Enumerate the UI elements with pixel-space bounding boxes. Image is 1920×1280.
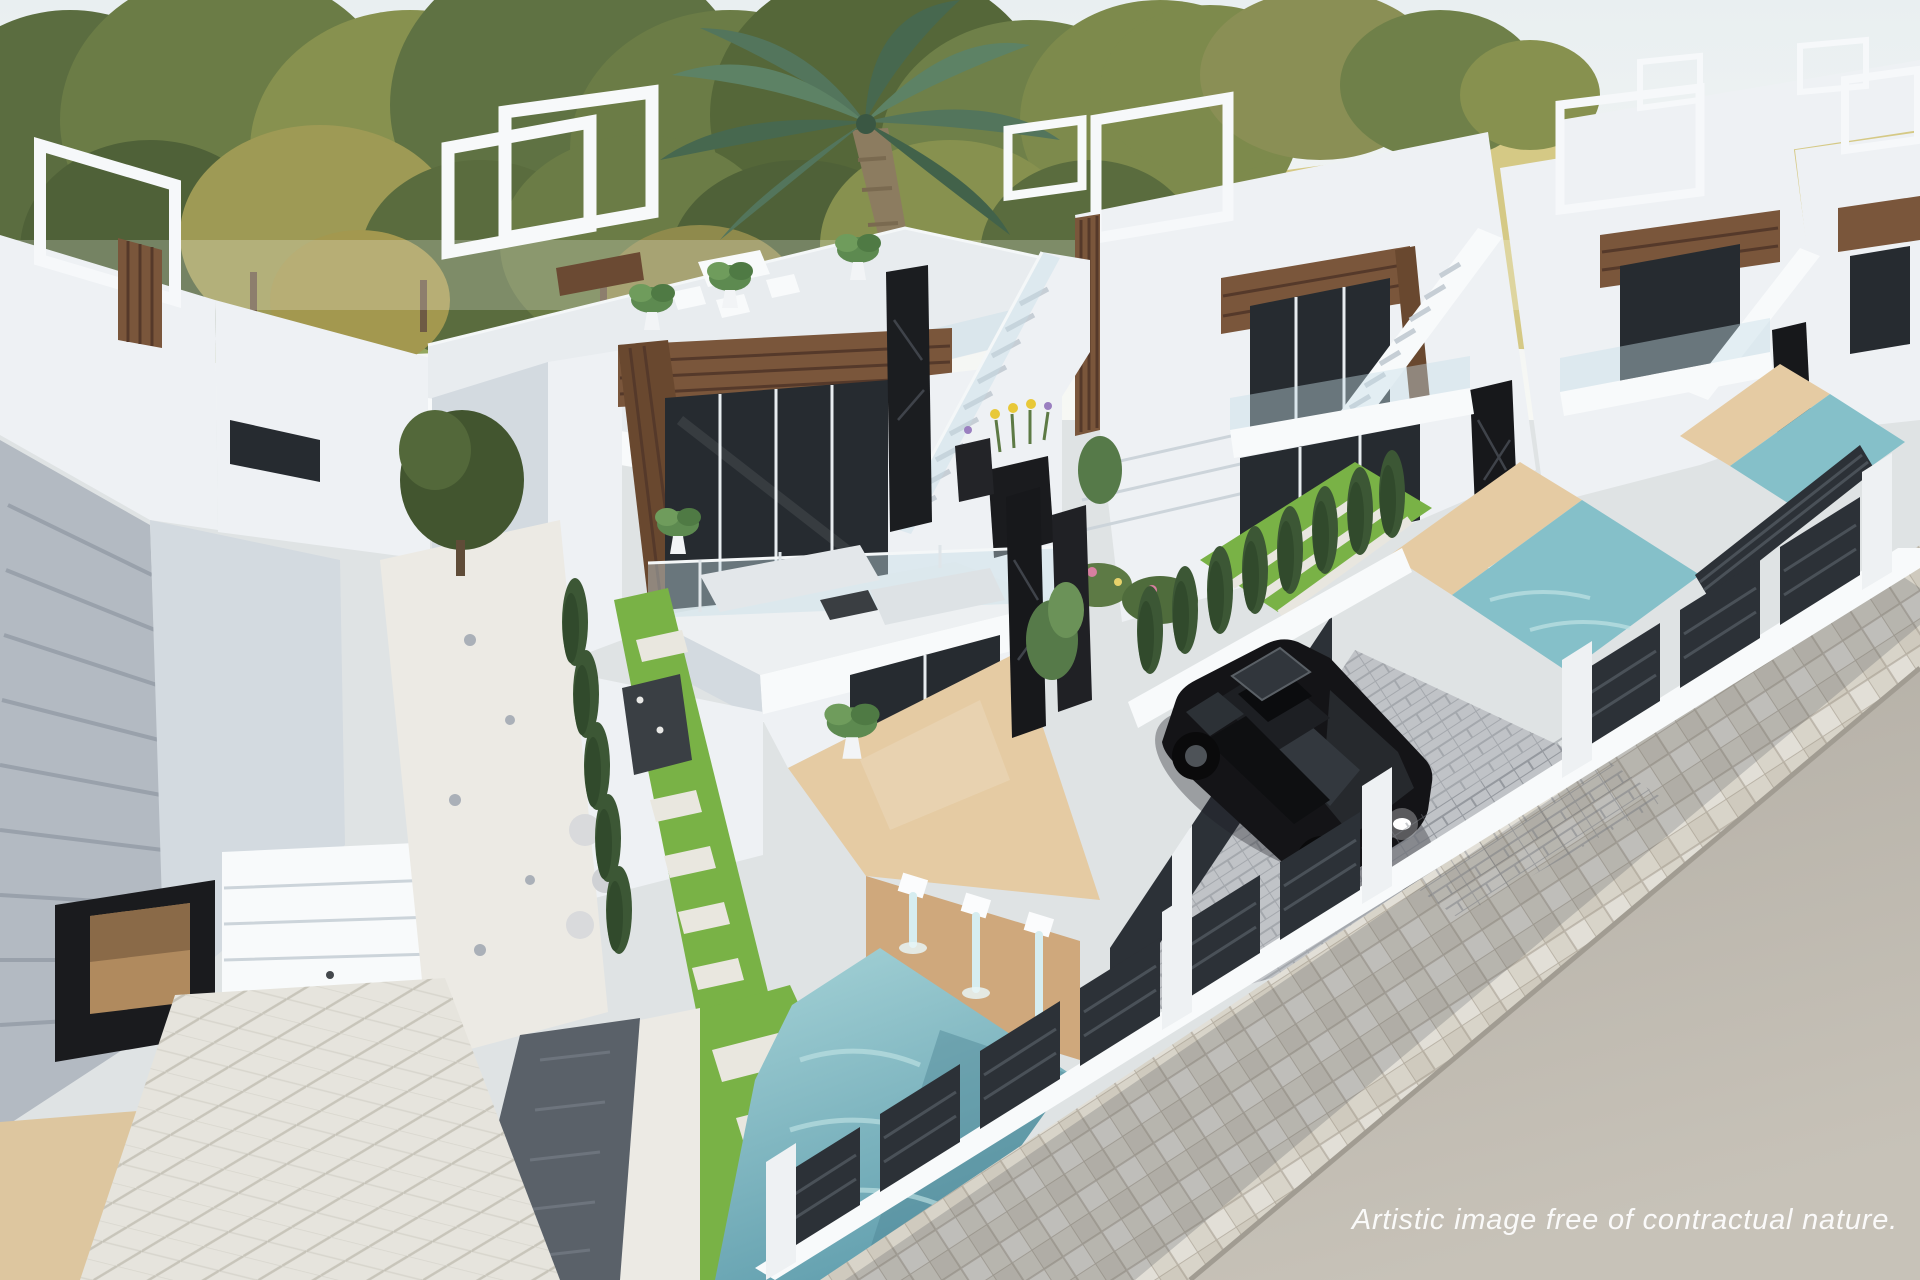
cypress-tree	[1172, 566, 1198, 654]
cypress-tree	[1242, 526, 1268, 614]
hedge-cypress	[606, 866, 632, 954]
car-wheel-rim	[1185, 745, 1207, 767]
marble-planter	[955, 438, 994, 502]
water-splash	[962, 987, 990, 999]
watermark-text: Artistic image free of contractual natur…	[1352, 1204, 1898, 1237]
cypress-tree	[1379, 450, 1405, 538]
cypress-tree	[1347, 467, 1373, 555]
yellow-flower	[990, 409, 1000, 419]
water-splash	[899, 942, 927, 954]
fence-pillar	[766, 1143, 796, 1280]
white-boulder	[566, 911, 594, 939]
gravel-stone	[464, 634, 476, 646]
rendering-stage: Artistic image free of contractual natur…	[0, 0, 1920, 1280]
gravel-stone	[525, 875, 535, 885]
villa-development-rendering	[0, 0, 1920, 1280]
flowers	[1114, 578, 1122, 586]
dark-planter-box	[622, 674, 692, 775]
purple-flower	[1044, 402, 1052, 410]
gravel-stone	[474, 944, 486, 956]
palm-crown	[856, 114, 876, 134]
planter-pebble	[637, 697, 644, 704]
purple-flower	[964, 426, 972, 434]
entrance-marble-column	[886, 265, 932, 532]
cypress-tree	[1207, 546, 1233, 634]
planter-pebble	[657, 727, 664, 734]
trailing-plant	[1078, 436, 1122, 504]
yellow-flower	[1026, 399, 1036, 409]
fence-pillar	[1562, 641, 1592, 778]
garage-handle	[326, 971, 334, 979]
cypress-tree	[1137, 586, 1163, 674]
cypress-tree	[1312, 486, 1338, 574]
gravel-stone	[505, 715, 515, 725]
gravel-stone	[449, 794, 461, 806]
fence-pillar	[1362, 767, 1392, 904]
garden-tree	[399, 410, 471, 490]
fence-pillar	[1162, 893, 1192, 1030]
garden-tree-trunk	[456, 540, 465, 576]
villa-4-window	[1850, 246, 1910, 354]
yellow-flower	[1008, 403, 1018, 413]
entrance-palm-plant	[1048, 582, 1084, 638]
flowers	[1087, 567, 1097, 577]
cypress-tree	[1277, 506, 1303, 594]
fence-pillar	[1862, 453, 1892, 590]
